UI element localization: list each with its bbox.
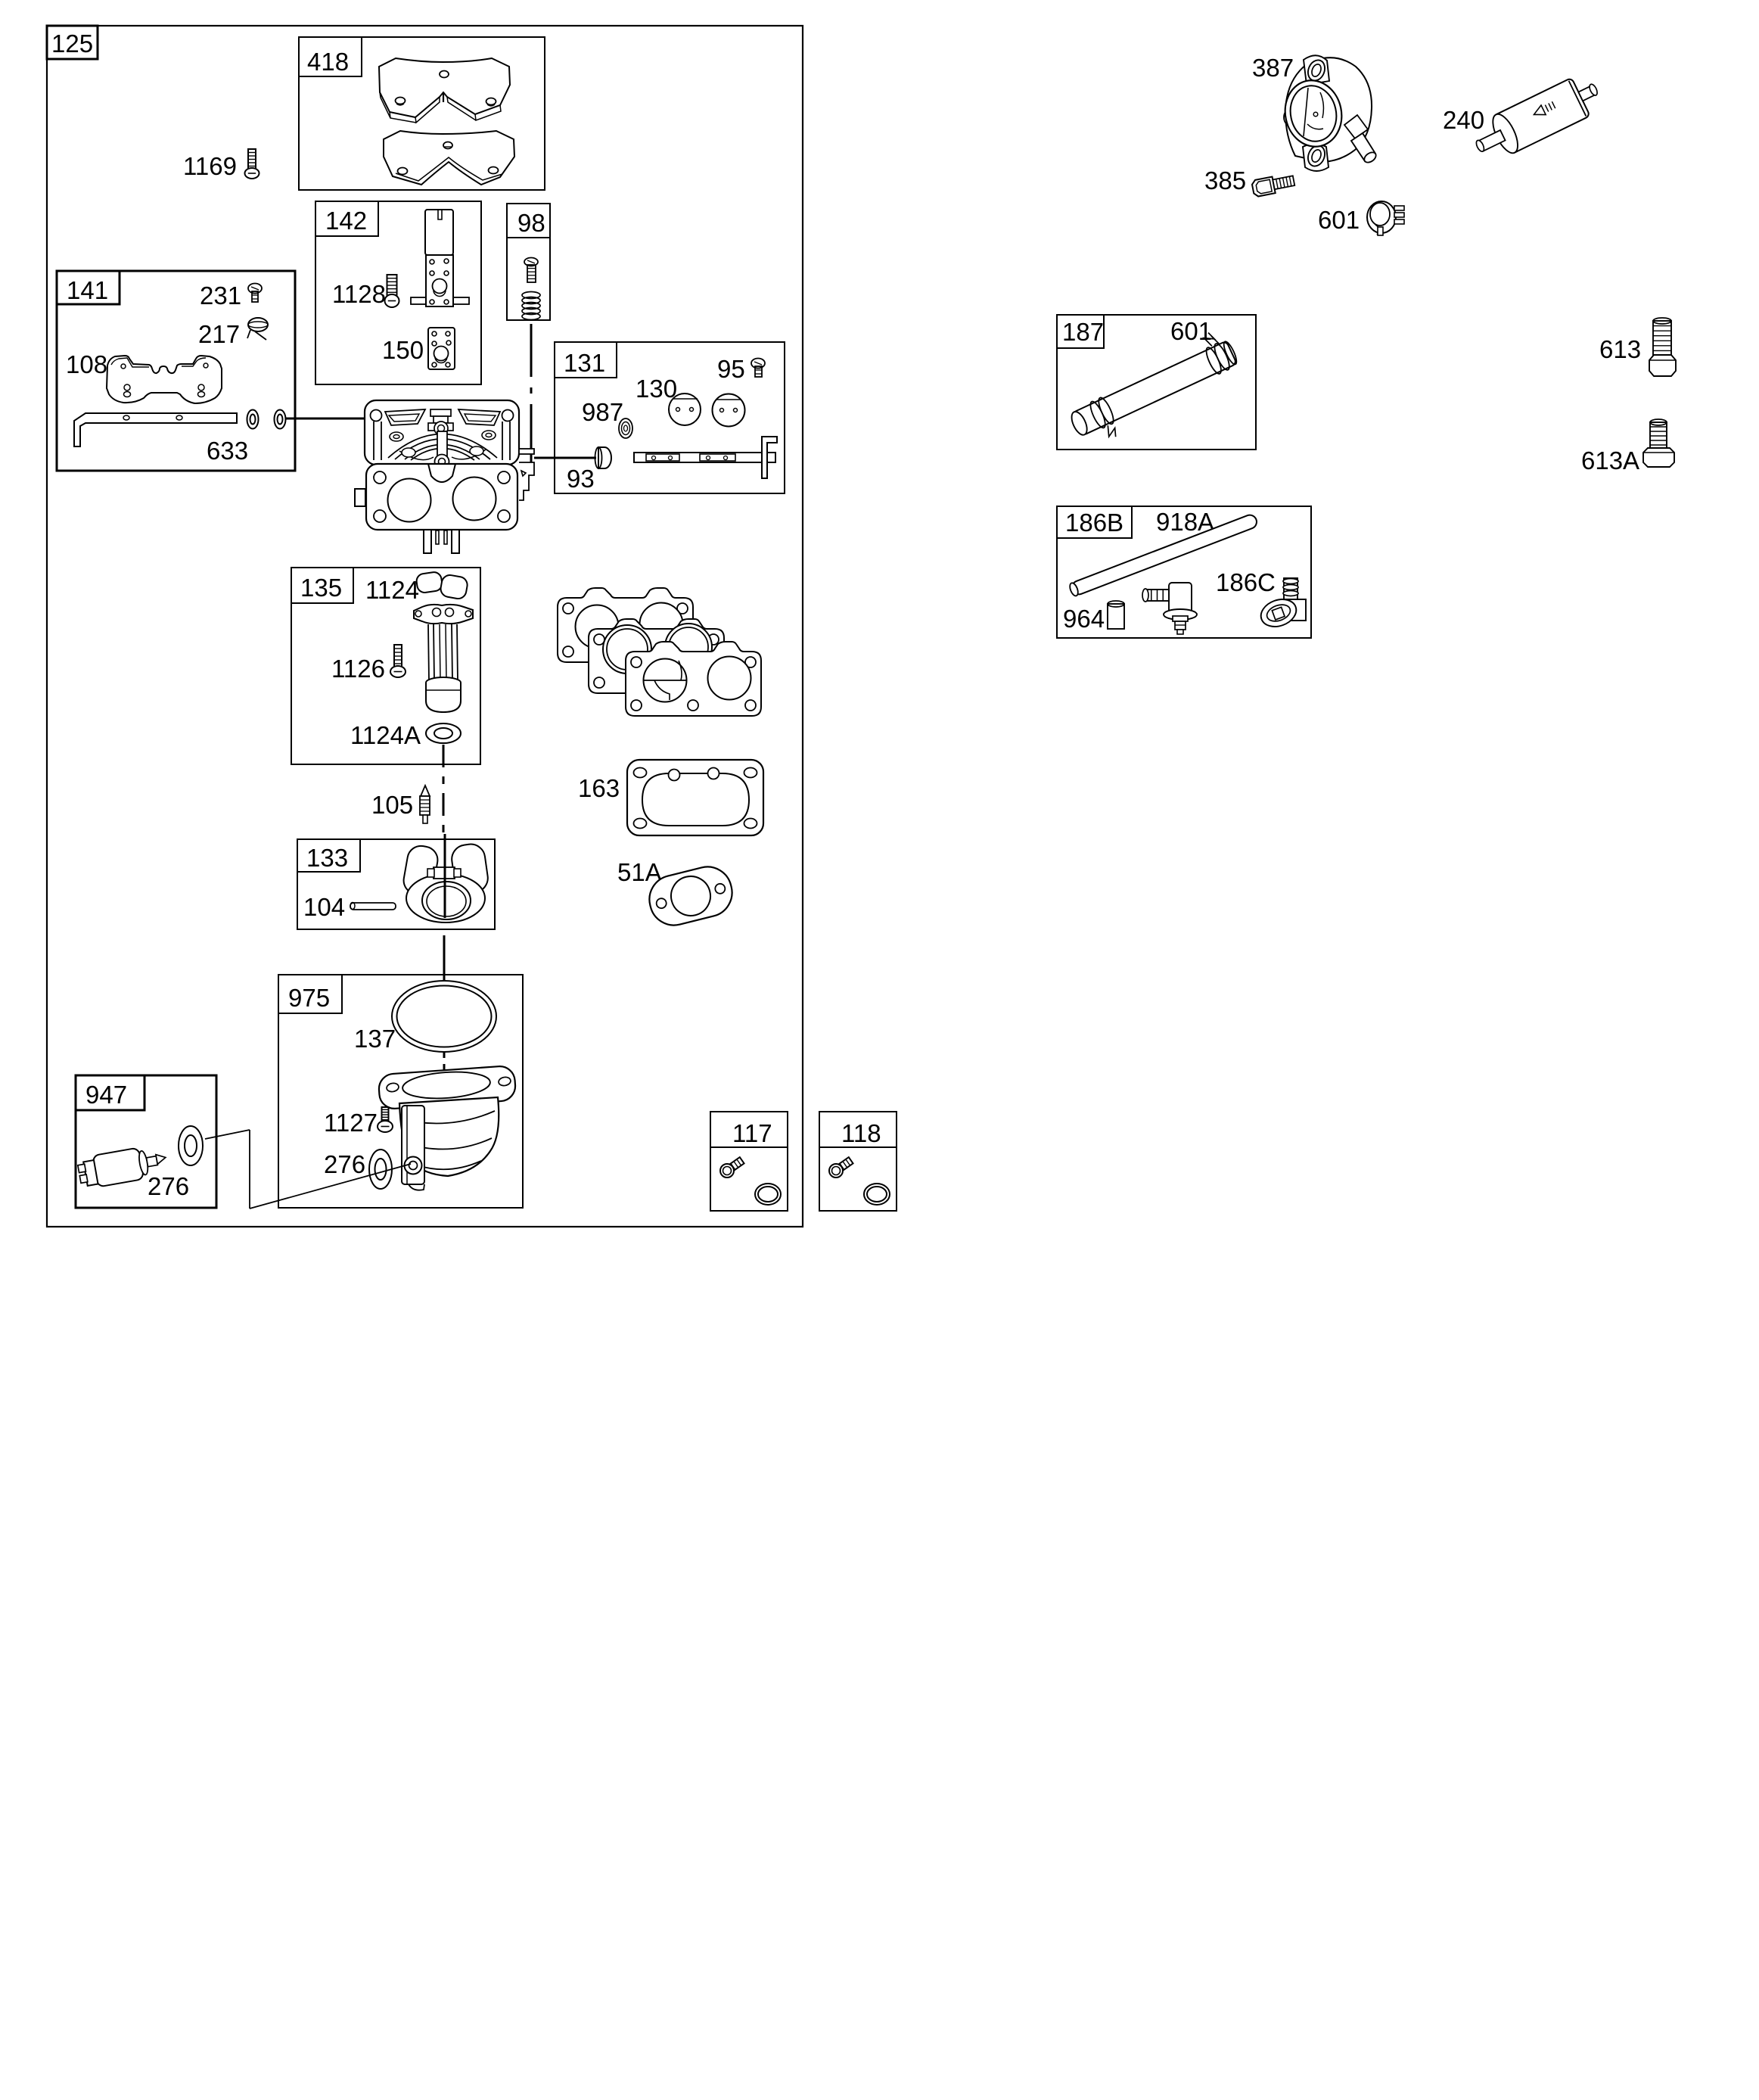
svg-text:137: 137 [354, 1025, 396, 1053]
svg-text:98: 98 [517, 209, 545, 237]
svg-text:117: 117 [732, 1119, 772, 1147]
svg-text:130: 130 [636, 375, 677, 403]
svg-text:104: 104 [303, 893, 345, 921]
svg-text:93: 93 [567, 465, 595, 493]
svg-text:187: 187 [1062, 318, 1104, 346]
svg-text:133: 133 [306, 844, 348, 872]
svg-text:975: 975 [288, 984, 330, 1012]
svg-text:1128: 1128 [332, 280, 386, 308]
svg-text:1124A: 1124A [350, 721, 421, 749]
svg-text:163: 163 [578, 774, 620, 802]
svg-text:964: 964 [1063, 605, 1105, 633]
svg-text:150: 150 [382, 336, 424, 364]
svg-text:1126: 1126 [331, 655, 385, 683]
svg-text:276: 276 [324, 1150, 365, 1178]
svg-text:51A: 51A [617, 858, 662, 886]
svg-text:947: 947 [85, 1081, 127, 1109]
svg-text:141: 141 [67, 276, 108, 304]
svg-text:276: 276 [148, 1172, 189, 1200]
svg-text:131: 131 [564, 349, 605, 377]
svg-text:142: 142 [325, 207, 367, 235]
svg-text:1169: 1169 [183, 152, 237, 180]
svg-text:418: 418 [307, 48, 349, 76]
svg-text:118: 118 [841, 1119, 881, 1147]
svg-text:186C: 186C [1216, 568, 1276, 596]
svg-text:186B: 186B [1065, 509, 1123, 537]
svg-text:601: 601 [1170, 317, 1212, 345]
svg-text:987: 987 [582, 398, 623, 426]
svg-text:135: 135 [300, 574, 342, 602]
svg-text:231: 231 [200, 282, 241, 310]
svg-text:108: 108 [66, 350, 107, 378]
svg-text:217: 217 [198, 320, 240, 348]
svg-text:385: 385 [1204, 166, 1246, 194]
svg-text:613A: 613A [1581, 446, 1639, 474]
svg-text:240: 240 [1443, 106, 1484, 134]
svg-text:105: 105 [371, 791, 413, 819]
svg-text:601: 601 [1318, 206, 1360, 234]
svg-text:1127: 1127 [324, 1109, 378, 1137]
svg-text:95: 95 [717, 355, 745, 383]
svg-text:125: 125 [51, 30, 93, 58]
svg-text:387: 387 [1252, 54, 1294, 82]
svg-text:613: 613 [1599, 335, 1641, 363]
svg-text:633: 633 [207, 437, 248, 465]
svg-text:1124: 1124 [365, 576, 419, 604]
